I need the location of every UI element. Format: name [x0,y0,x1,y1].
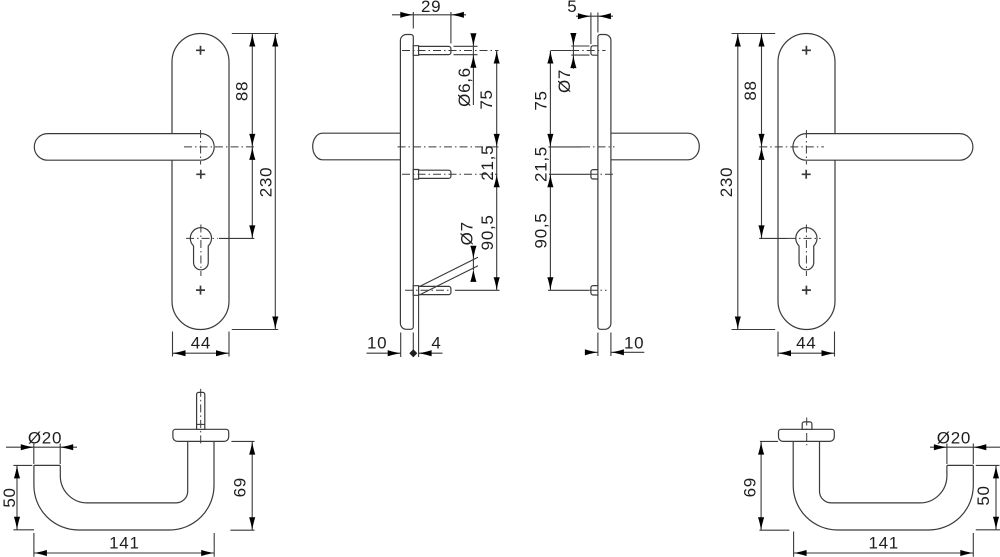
svg-text:50: 50 [0,487,19,507]
svg-text:230: 230 [256,167,275,197]
svg-text:88: 88 [741,80,760,100]
svg-text:4: 4 [431,334,441,353]
svg-text:90,5: 90,5 [532,213,551,249]
svg-text:75: 75 [531,90,550,110]
svg-text:10: 10 [624,333,644,352]
svg-text:69: 69 [231,477,250,497]
svg-text:75: 75 [477,89,496,109]
svg-text:Ø20: Ø20 [28,429,62,448]
svg-text:141: 141 [868,534,898,553]
svg-text:29: 29 [421,0,441,16]
svg-text:88: 88 [233,81,252,101]
svg-text:44: 44 [796,334,816,353]
svg-text:Ø6,6: Ø6,6 [455,67,474,107]
svg-text:21,5: 21,5 [532,146,551,182]
svg-text:10: 10 [367,334,387,353]
svg-text:5: 5 [567,0,577,16]
svg-text:230: 230 [717,167,736,197]
svg-text:69: 69 [741,477,760,497]
svg-text:Ø7: Ø7 [457,221,476,245]
svg-text:50: 50 [974,485,993,505]
svg-text:141: 141 [109,534,139,553]
svg-text:Ø7: Ø7 [555,69,574,93]
svg-text:Ø20: Ø20 [937,429,971,448]
svg-text:90,5: 90,5 [478,214,497,250]
svg-text:44: 44 [191,334,211,353]
svg-text:21,5: 21,5 [478,145,497,181]
